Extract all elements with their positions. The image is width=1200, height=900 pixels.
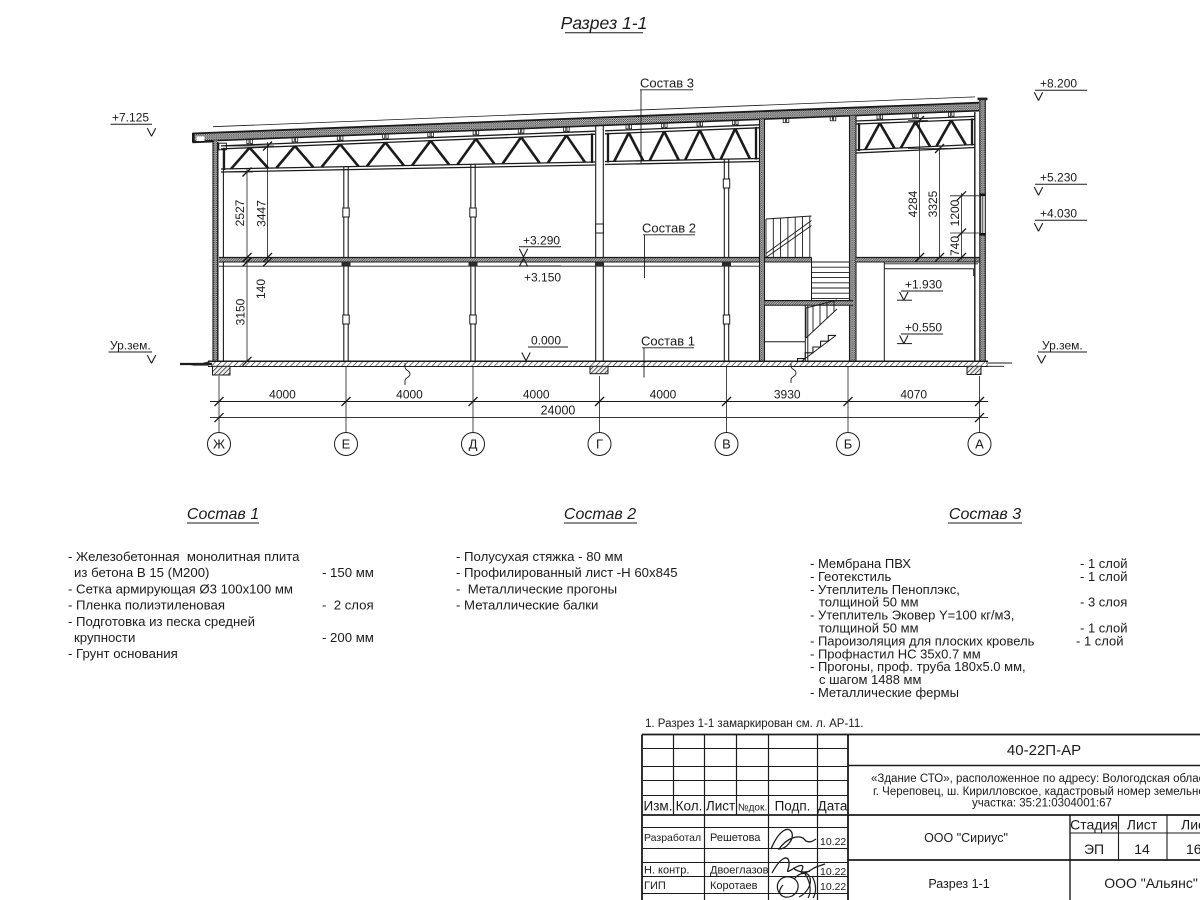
svg-text:- Пленка полиэтиленовая: - Пленка полиэтиленовая <box>68 598 225 613</box>
svg-text:Листов: Листов <box>1181 817 1200 833</box>
svg-text:Кол.: Кол. <box>676 799 703 814</box>
svg-text:Лист: Лист <box>1127 817 1158 833</box>
svg-text:+3.150: +3.150 <box>524 271 561 285</box>
svg-text:- 2 слоя: - 2 слоя <box>322 598 374 613</box>
svg-text:- Металлические фермы: - Металлические фермы <box>810 685 959 700</box>
svg-text:0.000: 0.000 <box>531 334 561 348</box>
svg-text:Изм.: Изм. <box>644 799 673 814</box>
svg-text:+0.550: +0.550 <box>905 321 942 335</box>
svg-text:№док.: №док. <box>738 803 767 814</box>
svg-text:4000: 4000 <box>269 388 296 402</box>
svg-text:- Металлические балки: - Металлические балки <box>456 598 598 613</box>
svg-text:+5.230: +5.230 <box>1040 171 1077 185</box>
svg-text:10.22: 10.22 <box>820 836 846 848</box>
svg-text:- Грунт основания: - Грунт основания <box>68 646 178 661</box>
svg-text:Разрез 1-1: Разрез 1-1 <box>928 877 989 891</box>
svg-text:1. Разрез 1-1 замаркирован см.: 1. Разрез 1-1 замаркирован см. л. АР-11. <box>645 718 863 730</box>
svg-text:- Профилированный лист -Н 60х8: - Профилированный лист -Н 60х845 <box>456 565 678 580</box>
svg-text:из бетона В 15 (М200): из бетона В 15 (М200) <box>74 565 209 580</box>
svg-text:1200: 1200 <box>948 199 962 226</box>
svg-text:140: 140 <box>254 279 268 299</box>
svg-text:Коротаев: Коротаев <box>710 880 758 892</box>
svg-text:Ур.зем.: Ур.зем. <box>110 339 151 353</box>
svg-text:+1.930: +1.930 <box>905 278 942 292</box>
svg-text:- 1 слой: - 1 слой <box>1080 569 1128 584</box>
svg-text:14: 14 <box>1134 841 1150 857</box>
svg-text:ООО "Альянс": ООО "Альянс" <box>1104 875 1198 891</box>
svg-text:3930: 3930 <box>774 388 801 402</box>
svg-text:- Железобетонная монолитная п: - Железобетонная монолитная плита <box>68 549 300 564</box>
svg-text:+8.200: +8.200 <box>1040 77 1077 91</box>
svg-text:Состав 2: Состав 2 <box>642 221 696 236</box>
svg-text:Стадия: Стадия <box>1070 817 1118 833</box>
svg-text:4284: 4284 <box>906 190 920 217</box>
svg-text:Решетова: Решетова <box>710 832 761 844</box>
svg-text:- 200 мм: - 200 мм <box>322 630 374 645</box>
svg-text:4000: 4000 <box>396 388 423 402</box>
svg-text:г. Череповец, ш. Кирилловское,: г. Череповец, ш. Кирилловское, кадастров… <box>873 786 1200 798</box>
svg-text:+7.125: +7.125 <box>112 111 149 125</box>
svg-text:3447: 3447 <box>255 200 269 227</box>
svg-text:- Подготовка из песка средней: - Подготовка из песка средней <box>68 614 255 629</box>
svg-text:Состав 1: Состав 1 <box>641 334 695 349</box>
svg-text:Г: Г <box>596 437 603 452</box>
svg-text:740: 740 <box>948 236 962 256</box>
svg-text:Двоеглазов: Двоеглазов <box>710 865 769 877</box>
svg-text:Состав 1: Состав 1 <box>187 506 259 523</box>
svg-text:участка: 35:21:0304001:67: участка: 35:21:0304001:67 <box>972 798 1112 810</box>
svg-text:- Полусухая стяжка - 80 мм: - Полусухая стяжка - 80 мм <box>456 549 623 564</box>
svg-text:ООО "Сириус": ООО "Сириус" <box>924 831 1008 845</box>
svg-text:4000: 4000 <box>650 388 677 402</box>
svg-text:Разработал: Разработал <box>644 832 701 844</box>
svg-text:+4.030: +4.030 <box>1040 207 1077 221</box>
svg-text:Лист: Лист <box>706 799 735 814</box>
svg-text:4070: 4070 <box>900 388 927 402</box>
svg-text:Состав 3: Состав 3 <box>949 506 1021 523</box>
svg-text:10.22: 10.22 <box>820 881 846 893</box>
svg-text:2527: 2527 <box>233 199 247 226</box>
svg-text:Д: Д <box>469 437 478 452</box>
svg-text:Подп.: Подп. <box>775 799 811 814</box>
svg-text:Состав 3: Состав 3 <box>640 76 694 91</box>
svg-text:3150: 3150 <box>234 298 248 325</box>
svg-text:В: В <box>722 437 731 452</box>
svg-text:А: А <box>975 437 984 452</box>
svg-text:4000: 4000 <box>523 388 550 402</box>
svg-text:24000: 24000 <box>541 404 576 418</box>
svg-text:ЭП: ЭП <box>1084 841 1104 857</box>
svg-text:16: 16 <box>1186 841 1200 857</box>
svg-text:- 3 слоя: - 3 слоя <box>1080 595 1127 610</box>
svg-text:3325: 3325 <box>926 190 940 217</box>
svg-text:Б: Б <box>844 437 853 452</box>
svg-text:+3.290: +3.290 <box>523 234 560 248</box>
svg-text:Разрез 1-1: Разрез 1-1 <box>561 13 648 33</box>
svg-text:Е: Е <box>342 437 351 452</box>
svg-text:Дата: Дата <box>818 799 848 814</box>
svg-text:Н. контр.: Н. контр. <box>644 865 689 877</box>
svg-text:Ж: Ж <box>213 437 225 452</box>
svg-text:- Сетка армирующая Ø3 100х100: - Сетка армирующая Ø3 100х100 мм <box>68 581 293 596</box>
svg-text:Состав 2: Состав 2 <box>564 506 636 523</box>
svg-text:10.22: 10.22 <box>820 866 846 878</box>
svg-text:Ур.зем.: Ур.зем. <box>1042 339 1083 353</box>
svg-text:«Здание СТО», расположенное по: «Здание СТО», расположенное по адресу: В… <box>871 773 1200 785</box>
svg-text:40-22П-АР: 40-22П-АР <box>1007 742 1081 759</box>
svg-text:крупности: крупности <box>74 630 135 645</box>
svg-text:- 150 мм: - 150 мм <box>322 565 374 580</box>
svg-text:- 1 слой: - 1 слой <box>1076 633 1124 648</box>
svg-text:ГИП: ГИП <box>644 880 666 892</box>
svg-text:- Металлические прогоны: - Металлические прогоны <box>456 581 617 596</box>
